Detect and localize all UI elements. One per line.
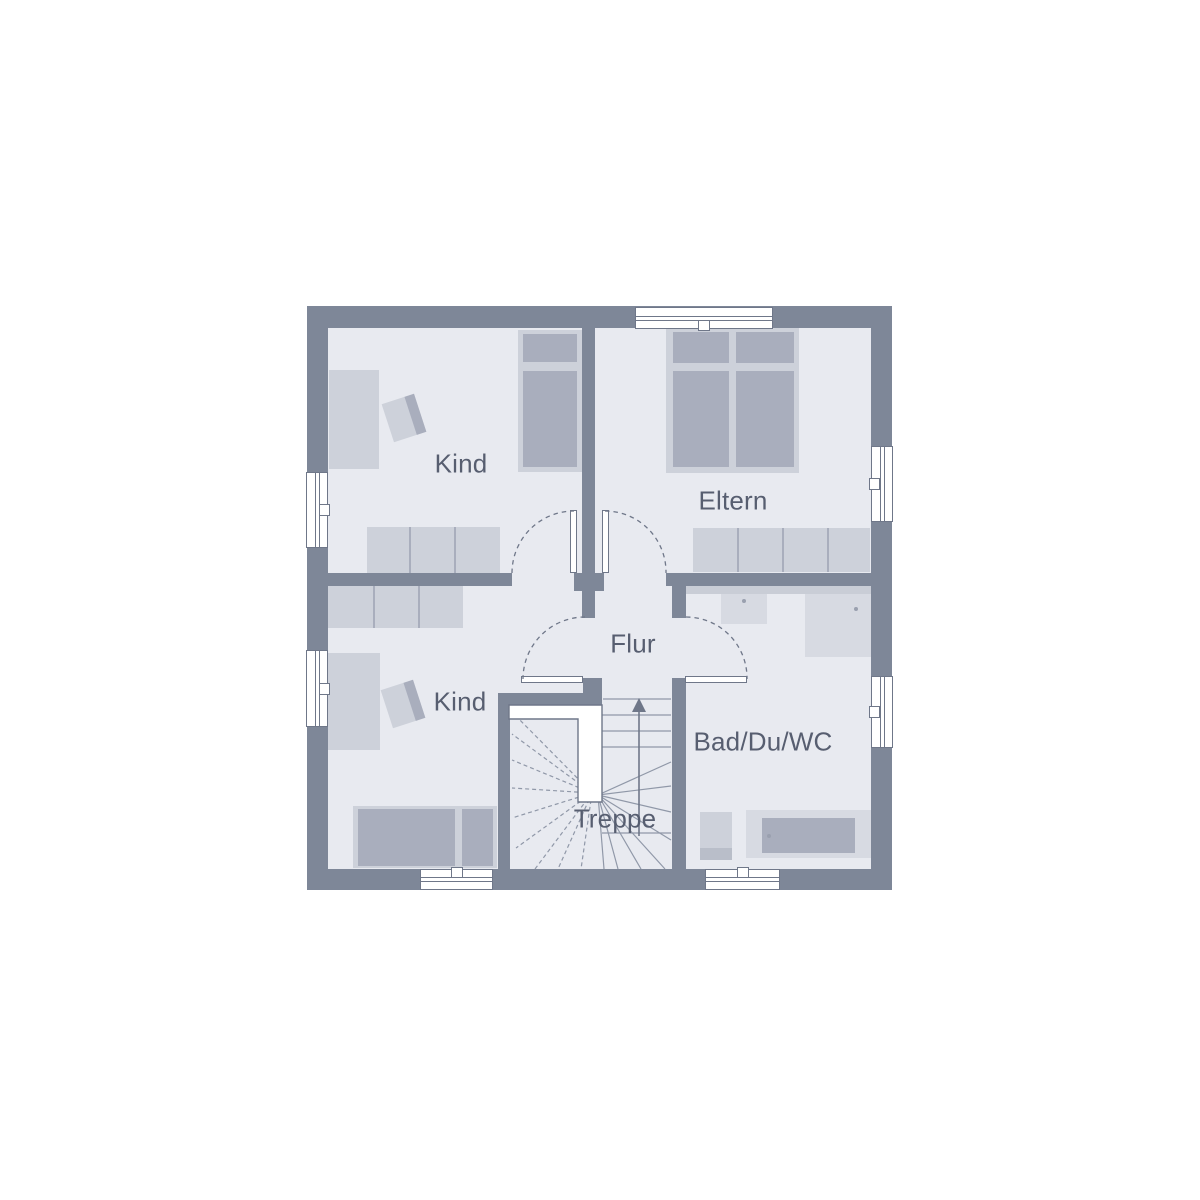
wardrobe: [367, 527, 500, 573]
wall-segment: [307, 869, 892, 890]
bed-mattress: [736, 371, 794, 467]
door-leaf: [602, 510, 609, 573]
window-glass-line: [884, 447, 885, 521]
bed-pillow: [736, 332, 794, 363]
bathtub-basin: [762, 818, 855, 853]
window-glass-line: [706, 881, 779, 882]
shower: [805, 594, 871, 657]
window-post: [698, 320, 710, 331]
wardrobe-divider: [454, 527, 456, 573]
window-glass-line: [884, 677, 885, 747]
double-bed: [666, 328, 799, 473]
window-post: [869, 706, 880, 718]
wardrobe-divider: [409, 527, 411, 573]
wall-segment: [871, 328, 892, 869]
door-leaf: [570, 510, 577, 573]
room-label-kind-bottom: Kind: [434, 687, 487, 718]
window-symbol: [635, 307, 773, 329]
window-symbol: [306, 472, 328, 548]
bed-pillow: [462, 809, 493, 866]
window-post: [319, 504, 330, 516]
room-label-treppe: Treppe: [574, 804, 657, 835]
drain-dot: [854, 607, 858, 611]
wall-segment: [583, 678, 602, 705]
window-post: [869, 478, 880, 490]
bed-mattress: [358, 809, 455, 866]
toilet: [700, 812, 732, 848]
wall-segment: [672, 678, 686, 869]
door-leaf: [521, 676, 583, 683]
bed-mattress: [673, 371, 729, 467]
drain-dot: [767, 834, 771, 838]
faucet-dot: [742, 599, 746, 603]
window-post: [319, 683, 330, 695]
wall-segment: [666, 573, 871, 586]
wardrobe-divider: [373, 586, 375, 628]
single-bed: [353, 806, 497, 868]
single-bed: [518, 330, 582, 472]
desk: [328, 653, 380, 750]
wardrobe-divider: [418, 586, 420, 628]
window-symbol: [306, 650, 328, 727]
wardrobe: [328, 586, 463, 628]
room-label-eltern: Eltern: [698, 486, 767, 517]
bed-pillow: [673, 332, 729, 363]
wardrobe-divider: [782, 528, 784, 572]
toilet-cistern: [700, 848, 732, 860]
room-label-flur: Flur: [610, 629, 656, 660]
floorplan: Kind Eltern Kind Flur Bad/Du/WC Treppe: [0, 0, 1200, 1200]
bed-mattress: [523, 371, 577, 467]
wardrobe-divider: [827, 528, 829, 572]
window-symbol: [871, 446, 893, 522]
wardrobe-divider: [737, 528, 739, 572]
door-leaf: [685, 676, 747, 683]
wall-segment: [328, 573, 512, 586]
bathtub: [746, 810, 871, 858]
window-post: [451, 867, 463, 878]
window-glass-line: [315, 473, 316, 547]
wardrobe: [693, 528, 870, 572]
window-post: [737, 867, 749, 878]
window-glass-line: [421, 881, 492, 882]
room-label-kind-top: Kind: [435, 449, 488, 480]
wall-segment: [498, 693, 510, 869]
bath-counter-strip: [686, 586, 871, 594]
bed-pillow: [523, 334, 577, 362]
desk: [329, 370, 379, 469]
window-glass-line: [315, 651, 316, 726]
room-label-bad: Bad/Du/WC: [693, 727, 832, 758]
wall-segment: [307, 306, 892, 328]
wall-segment: [307, 328, 328, 869]
wall-segment: [672, 586, 686, 618]
window-symbol: [871, 676, 893, 748]
window-glass-line: [636, 316, 772, 317]
window-symbol: [705, 869, 780, 890]
window-symbol: [420, 869, 493, 890]
wall-segment: [582, 328, 595, 618]
